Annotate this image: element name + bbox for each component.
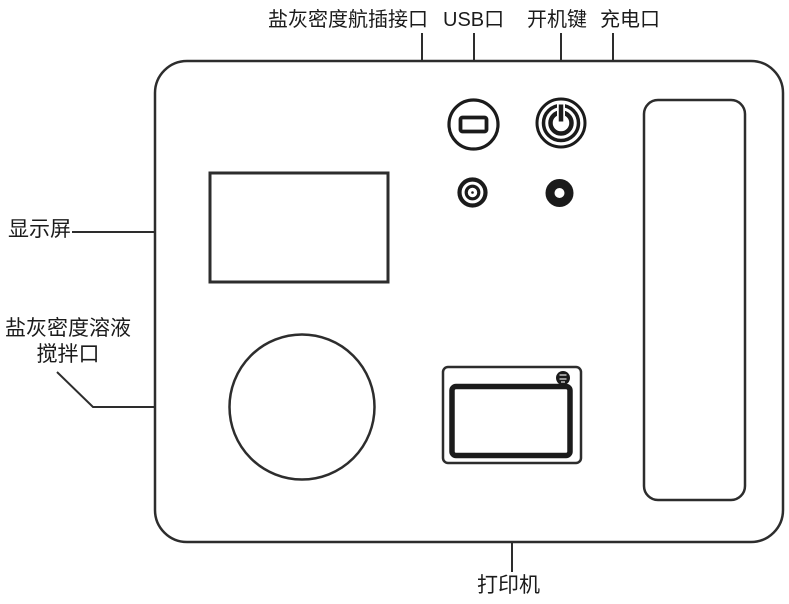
label-stir-port-line2: 搅拌口 xyxy=(4,342,132,368)
label-printer: 打印机 xyxy=(477,575,540,597)
label-stir-port-line1: 盐灰密度溶液 xyxy=(4,316,132,342)
printer-unit xyxy=(443,367,581,463)
usb-port-icon xyxy=(449,100,498,149)
screw-icon xyxy=(556,371,570,385)
paper-slot xyxy=(644,100,745,500)
device-diagram: 盐灰密度航插接口 USB口 开机键 充电口 显示屏 盐灰密度溶液 搅拌口 打印机 xyxy=(0,0,789,604)
charge-connector-icon xyxy=(550,184,569,203)
aviation-connector-icon xyxy=(460,180,486,206)
label-aviation-port: 盐灰密度航插接口 xyxy=(268,9,428,31)
diagram-linework xyxy=(0,0,789,604)
label-power-button: 开机键 xyxy=(527,9,587,31)
label-display-screen: 显示屏 xyxy=(8,219,71,241)
power-symbol-icon xyxy=(537,99,585,147)
label-charge-port: 充电口 xyxy=(600,9,660,31)
printer-cover xyxy=(452,387,570,456)
display-screen xyxy=(210,173,388,282)
label-usb-port: USB口 xyxy=(443,9,504,31)
label-stir-port: 盐灰密度溶液 搅拌口 xyxy=(4,316,132,368)
stir-port-opening xyxy=(230,335,375,480)
